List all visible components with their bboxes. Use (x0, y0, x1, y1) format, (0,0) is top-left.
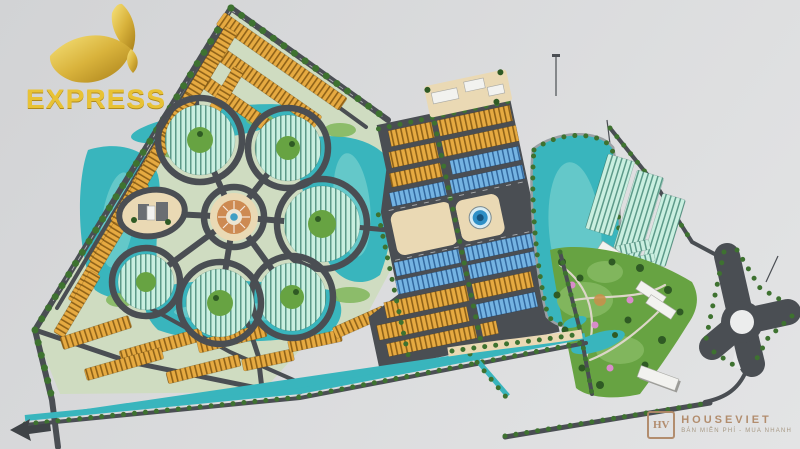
express-bird-icon (36, 2, 156, 90)
houseviet-title: HOUSEVIET (681, 414, 792, 428)
houseviet-monogram-icon: HV (647, 411, 675, 439)
express-logo: EXPRESS (6, 2, 186, 115)
flower-cluster (112, 248, 180, 316)
masterplan-screenshot: EXPRESS HV HOUSEVIET BÁN MIỄN PHÍ - MUA … (0, 0, 800, 449)
houseviet-watermark: HV HOUSEVIET BÁN MIỄN PHÍ - MUA NHANH (647, 411, 792, 439)
houseviet-tagline: BÁN MIỄN PHÍ - MUA NHANH (681, 428, 792, 436)
roundabout-junction (705, 250, 792, 369)
roundabout-island (730, 310, 754, 334)
flag (552, 54, 560, 57)
flower-cluster (248, 108, 328, 188)
flag-mast (766, 256, 778, 282)
landscape-park (550, 247, 697, 397)
flower-cluster (179, 262, 261, 344)
fountain (230, 213, 238, 221)
playground (594, 294, 606, 306)
central-plaza-roundabout (204, 187, 264, 247)
express-label: EXPRESS (2, 84, 189, 115)
